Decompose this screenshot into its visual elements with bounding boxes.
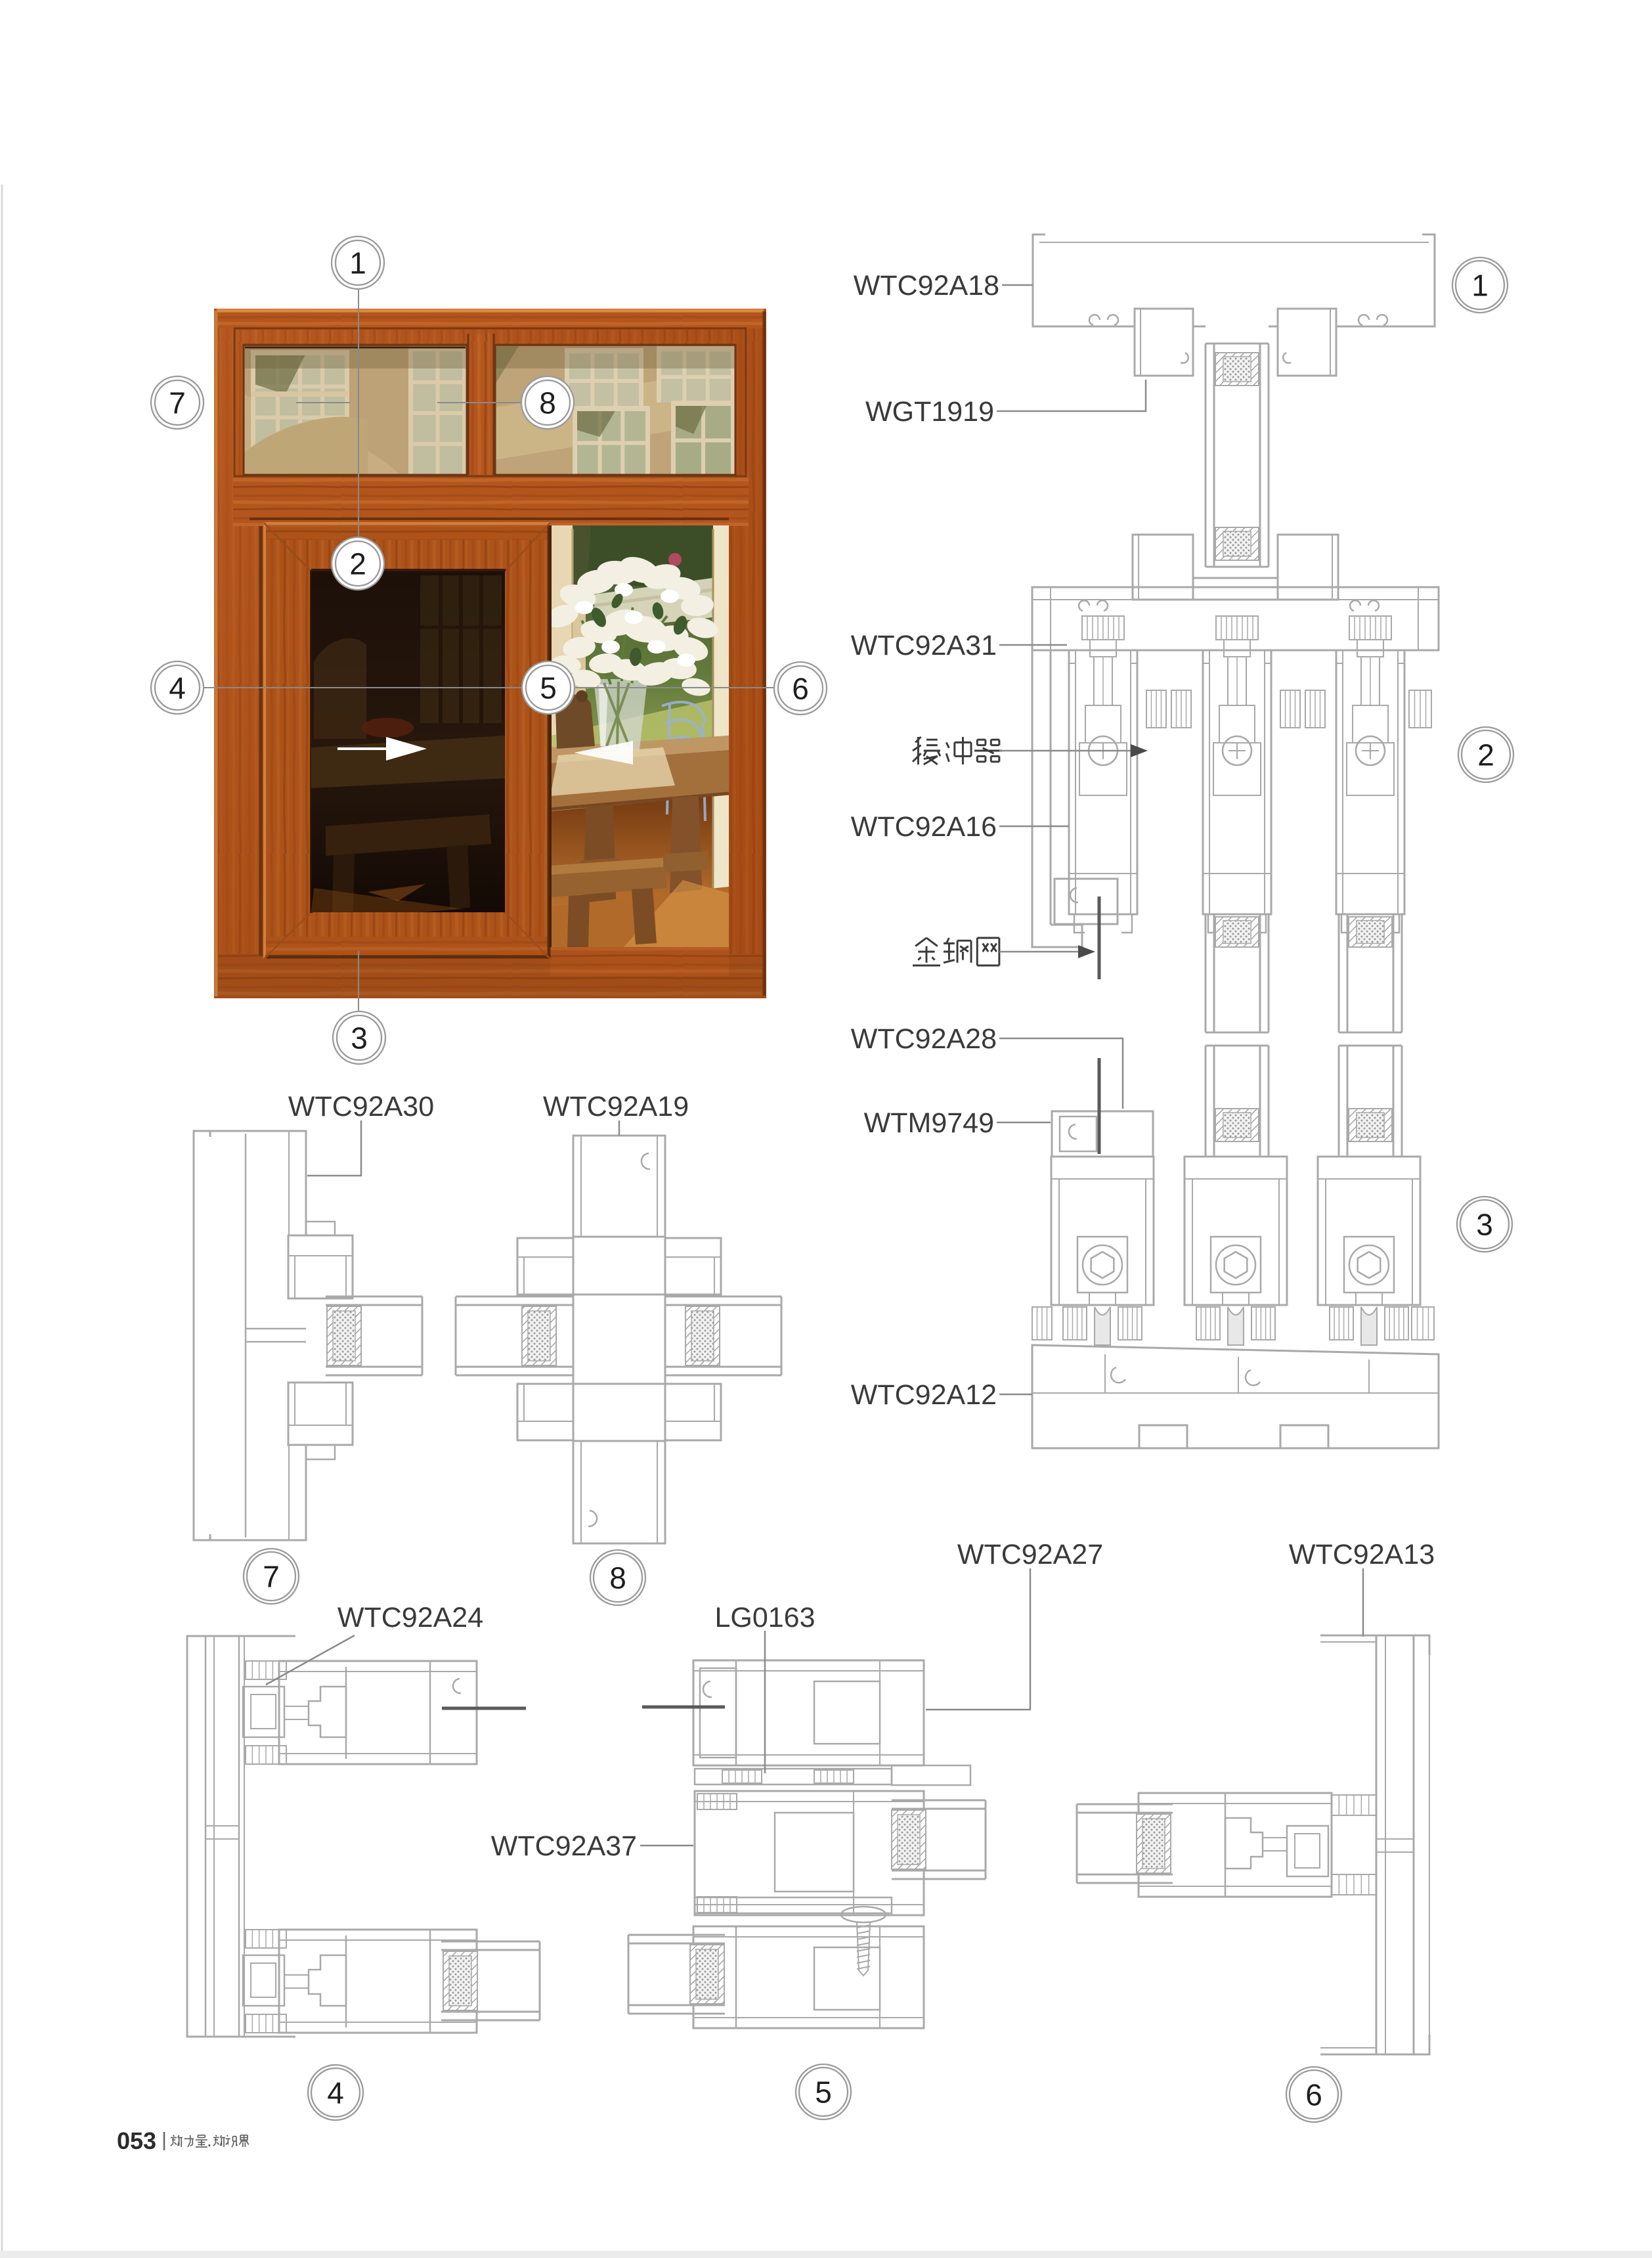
svg-text:6: 6 bbox=[792, 672, 809, 706]
svg-text:4: 4 bbox=[169, 671, 186, 705]
svg-text:2: 2 bbox=[349, 547, 366, 581]
svg-text:WTC92A18: WTC92A18 bbox=[854, 270, 999, 301]
svg-text:053: 053 bbox=[117, 2127, 156, 2154]
svg-text:4: 4 bbox=[327, 2076, 344, 2110]
svg-text:7: 7 bbox=[169, 386, 186, 420]
svg-text:7: 7 bbox=[263, 1560, 280, 1594]
svg-text:8: 8 bbox=[539, 386, 556, 420]
svg-text:WTC92A12: WTC92A12 bbox=[851, 1379, 997, 1411]
svg-text:WTC92A16: WTC92A16 bbox=[851, 811, 997, 843]
svg-text:6: 6 bbox=[1305, 2078, 1322, 2112]
svg-text:WTM9749: WTM9749 bbox=[864, 1107, 994, 1139]
svg-text:8: 8 bbox=[609, 1561, 626, 1595]
svg-text:WTC92A30: WTC92A30 bbox=[288, 1091, 434, 1122]
svg-text:3: 3 bbox=[1476, 1208, 1493, 1242]
svg-text:5: 5 bbox=[815, 2075, 832, 2110]
svg-text:WTC92A19: WTC92A19 bbox=[543, 1091, 689, 1122]
svg-text:2: 2 bbox=[1477, 738, 1494, 772]
svg-text:1: 1 bbox=[349, 246, 366, 280]
svg-text:WGT1919: WGT1919 bbox=[865, 396, 994, 428]
svg-text:1: 1 bbox=[1471, 269, 1489, 303]
svg-text:WTC92A24: WTC92A24 bbox=[337, 1602, 483, 1633]
svg-text:WTC92A37: WTC92A37 bbox=[491, 1830, 637, 1862]
svg-text:LG0163: LG0163 bbox=[714, 1602, 815, 1633]
svg-text:WTC92A28: WTC92A28 bbox=[851, 1023, 997, 1055]
svg-text:3: 3 bbox=[351, 1021, 368, 1055]
svg-text:WTC92A27: WTC92A27 bbox=[957, 1539, 1103, 1570]
svg-text:5: 5 bbox=[540, 671, 557, 705]
svg-text:WTC92A13: WTC92A13 bbox=[1289, 1539, 1435, 1570]
svg-text:WTC92A31: WTC92A31 bbox=[851, 630, 997, 661]
